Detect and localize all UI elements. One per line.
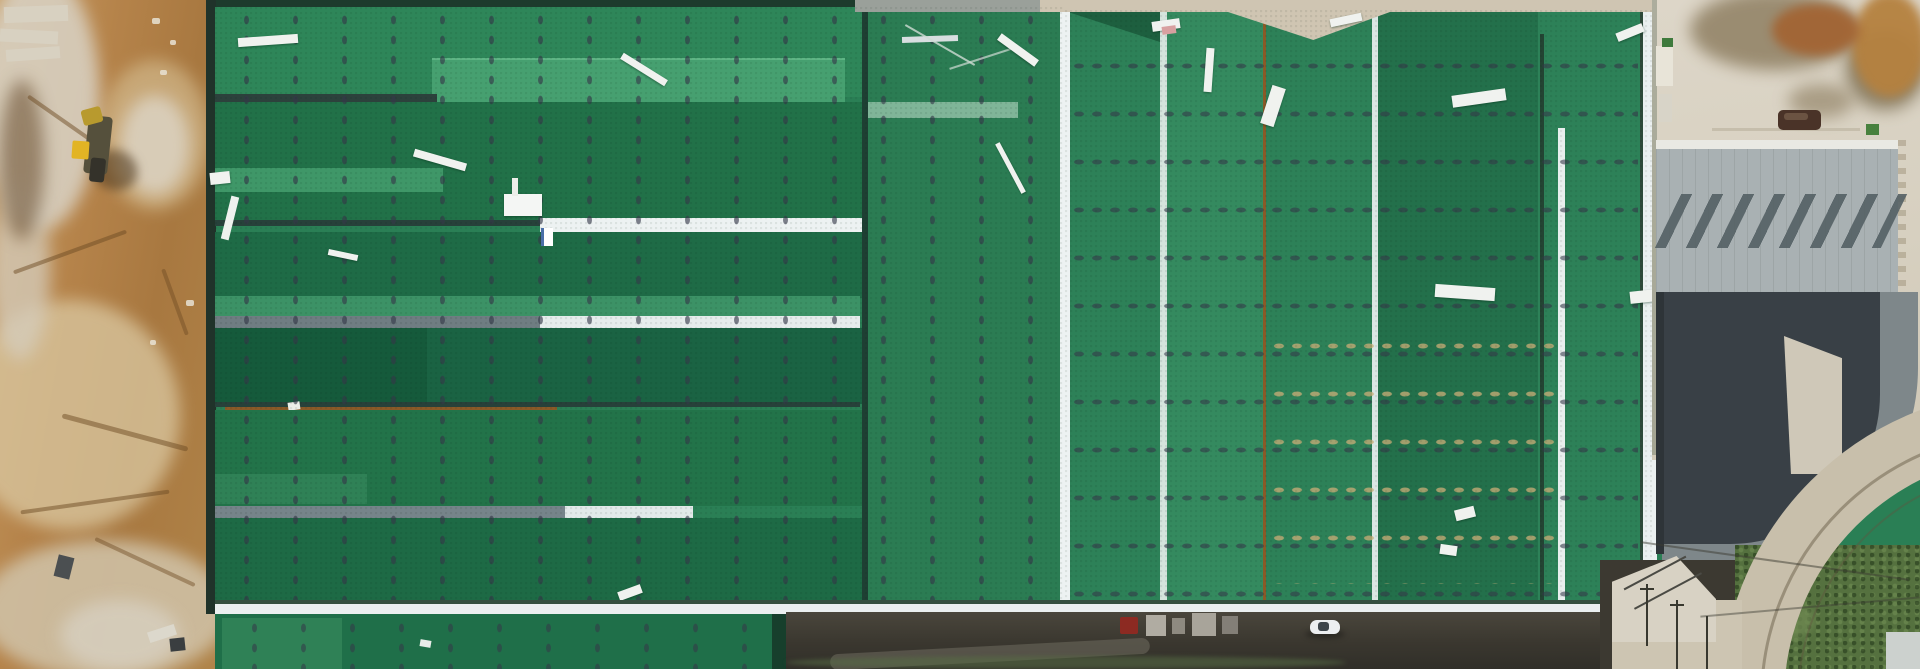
dark-suv-roof (1784, 113, 1808, 120)
white-stone (186, 300, 194, 306)
roof-texture (1065, 10, 1652, 614)
corner-shed (1886, 632, 1920, 669)
pallet-stack (1222, 616, 1238, 634)
pallet-stack (1172, 618, 1185, 634)
excavator-cab (71, 140, 89, 159)
roof-platform (504, 194, 542, 216)
concrete-notch (1784, 336, 1842, 474)
roof-plank (209, 171, 230, 185)
power-pole (1706, 616, 1708, 669)
roof-platform-mast (512, 178, 518, 196)
roof-texture (215, 7, 1065, 607)
gray-building-parapet (1656, 140, 1898, 149)
dark-bin (169, 637, 185, 651)
roof-lower-bay-edge (772, 614, 786, 669)
rust-debris-pile (1772, 4, 1860, 56)
utility-box (1659, 94, 1672, 122)
vent-stripes-vertical (230, 618, 770, 669)
white-stone (150, 340, 156, 345)
white-stone (160, 70, 167, 75)
green-bin (1662, 38, 1673, 47)
power-pole (1676, 600, 1678, 669)
power-pole-crossarm (1640, 588, 1654, 590)
dark-roof-west-shadow (1656, 292, 1664, 554)
red-truck (1120, 617, 1138, 634)
white-stone (152, 18, 160, 24)
aerial-photo (0, 0, 1920, 669)
power-pole (1646, 584, 1648, 646)
rooflight-shadow-teeth (1655, 194, 1907, 248)
blue-tag (541, 228, 553, 246)
power-pole-crossarm (1670, 604, 1684, 606)
white-stone (170, 40, 176, 45)
white-car-window (1318, 622, 1329, 631)
pallet-stack (1192, 613, 1216, 636)
pallet-stack (1146, 615, 1166, 636)
concrete-block (4, 5, 69, 23)
roof-plank (1439, 544, 1457, 556)
green-bin (1866, 124, 1879, 135)
excavator-tracks (89, 157, 106, 182)
grass-strip (786, 656, 1346, 669)
utility-box (1656, 46, 1673, 86)
